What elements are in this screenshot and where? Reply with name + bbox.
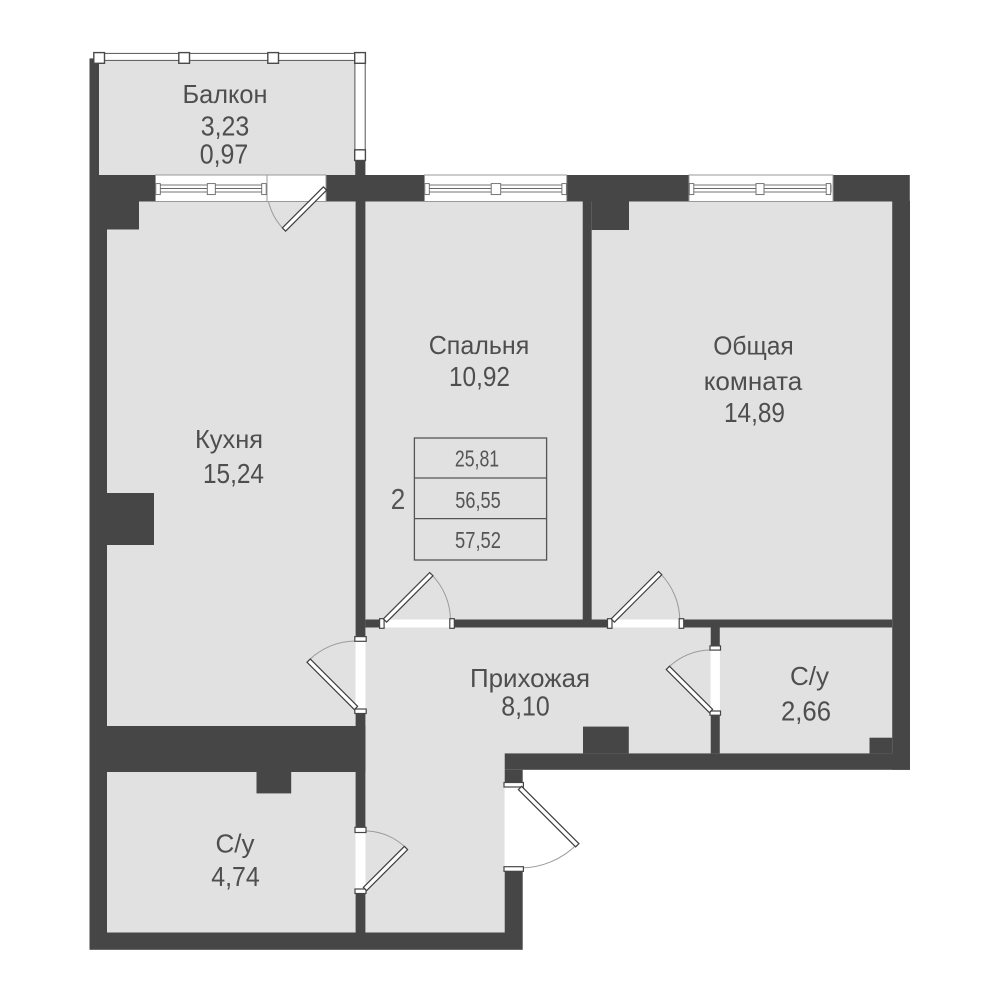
svg-text:56,55: 56,55 xyxy=(455,487,501,513)
svg-text:С/у: С/у xyxy=(790,661,829,691)
svg-text:25,81: 25,81 xyxy=(455,446,499,472)
svg-text:10,92: 10,92 xyxy=(449,361,510,392)
svg-text:Кухня: Кухня xyxy=(195,424,263,454)
svg-text:15,24: 15,24 xyxy=(203,458,264,489)
svg-text:Прихожая: Прихожая xyxy=(470,663,590,693)
svg-text:Балкон: Балкон xyxy=(183,79,268,109)
svg-text:4,74: 4,74 xyxy=(211,861,260,892)
svg-text:Общая: Общая xyxy=(713,331,794,361)
svg-text:2,66: 2,66 xyxy=(781,696,831,727)
svg-text:3,23: 3,23 xyxy=(201,111,250,142)
svg-text:0,97: 0,97 xyxy=(200,139,249,170)
svg-text:57,52: 57,52 xyxy=(455,527,501,553)
svg-text:2: 2 xyxy=(391,484,406,516)
svg-text:8,10: 8,10 xyxy=(501,691,550,722)
svg-text:С/у: С/у xyxy=(216,829,255,859)
svg-text:14,89: 14,89 xyxy=(724,397,785,428)
svg-text:Спальня: Спальня xyxy=(429,330,530,360)
svg-text:комната: комната xyxy=(704,366,803,396)
